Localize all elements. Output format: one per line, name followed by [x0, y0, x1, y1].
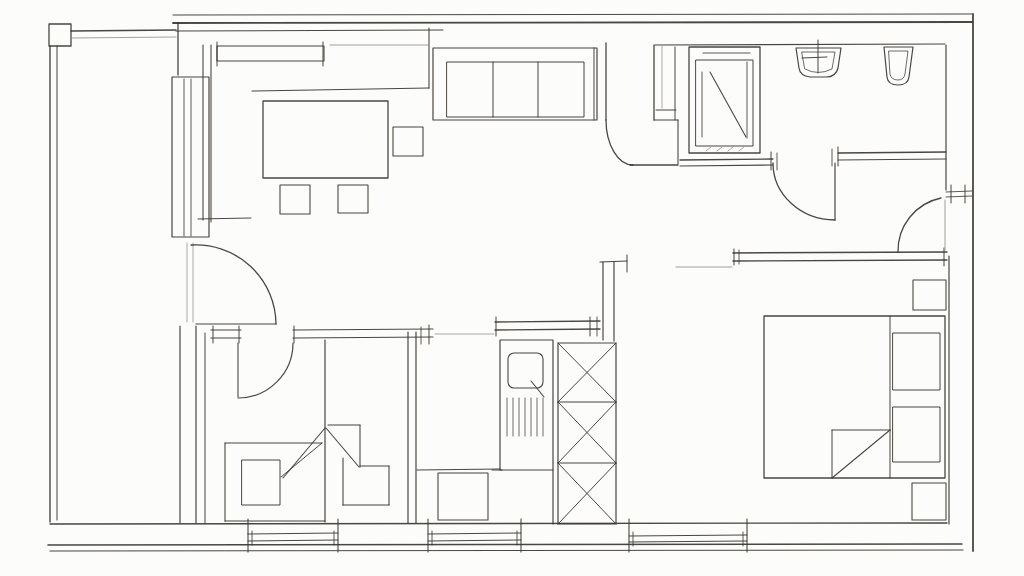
floorplan-canvas [0, 0, 1024, 576]
ext-top-wall [173, 22, 972, 23]
ext-bottom-wall-outer-1 [48, 544, 962, 545]
floorplan-sketch-sheet [0, 0, 1024, 576]
paper-background [0, 0, 1024, 576]
bedroom-north-wall-1 [733, 252, 947, 253]
